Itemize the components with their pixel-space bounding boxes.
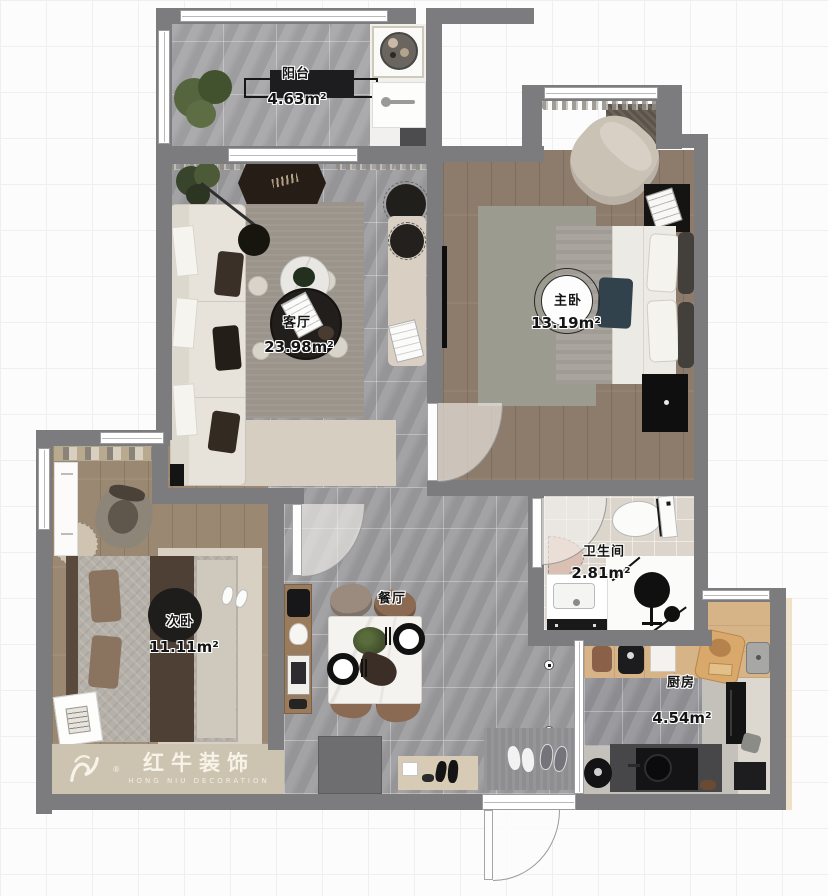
pillow xyxy=(88,635,122,689)
wall xyxy=(770,588,786,810)
bed-pillow xyxy=(646,233,680,293)
sideboard xyxy=(284,584,312,714)
pillow xyxy=(88,569,122,623)
bathroom-door xyxy=(532,498,542,568)
bed-bolster xyxy=(678,302,694,368)
kitchen-sliding-door xyxy=(574,640,584,794)
sofa-pillow-dark xyxy=(214,251,244,297)
room-label-living: 客厅 xyxy=(283,312,311,331)
floor-drain xyxy=(544,660,554,670)
wall xyxy=(427,146,443,403)
laundry-basin xyxy=(372,82,426,128)
slipper xyxy=(552,745,569,773)
floor-plan: 阳台 4.63m² 客厅 23.98m² 主卧 13.19m² 次卧 11.11… xyxy=(0,0,828,896)
bookshelf-row xyxy=(54,446,166,461)
outside-strip xyxy=(786,598,792,810)
bed-pillow xyxy=(646,299,679,362)
master-door xyxy=(427,403,438,481)
speaker xyxy=(170,464,184,486)
bed-bolster xyxy=(678,232,694,294)
teapot xyxy=(289,623,308,645)
wall xyxy=(427,480,708,496)
room-area-kitchen: 4.54m² xyxy=(652,709,711,727)
cutting-board-white xyxy=(650,642,676,672)
entry-door-mat xyxy=(484,728,574,790)
coffee-machine xyxy=(287,589,310,617)
room-label-master: 主卧 xyxy=(554,290,582,309)
wall xyxy=(426,8,534,24)
sofa-pillow-dark xyxy=(207,410,240,454)
room-area-second: 11.11m² xyxy=(149,638,219,656)
bench-cushion xyxy=(390,224,424,258)
watermark-subtitle: HONG NIU DECORATION xyxy=(128,777,269,785)
sofa-pillow-dark xyxy=(212,325,242,371)
slipper xyxy=(506,745,521,770)
accent-pillow xyxy=(597,277,634,329)
wall-tv xyxy=(442,246,447,348)
wall xyxy=(522,85,542,147)
wall xyxy=(694,480,708,646)
bull-logo-icon xyxy=(66,752,104,786)
balcony-plant xyxy=(174,70,244,142)
room-area-bathroom: 2.81m² xyxy=(571,564,630,582)
sofa-pillow-white xyxy=(172,297,198,349)
slipper xyxy=(521,748,535,773)
watermark-brand: 红牛装饰 xyxy=(143,753,255,774)
window xyxy=(180,10,388,22)
kettle xyxy=(584,758,612,788)
canister xyxy=(592,646,612,672)
entry-door-swing xyxy=(493,810,560,881)
window xyxy=(702,590,770,600)
window xyxy=(158,30,170,144)
window xyxy=(38,448,50,530)
room-label-balcony: 阳台 xyxy=(282,63,310,82)
wall xyxy=(694,134,708,498)
bathroom-vanity xyxy=(546,574,608,632)
wall xyxy=(528,630,712,646)
plate xyxy=(327,653,359,685)
registered-mark: ® xyxy=(112,765,120,774)
balcony-sliding-door xyxy=(228,148,358,162)
kitchen-sink xyxy=(746,642,770,674)
curtain xyxy=(542,100,658,110)
toilet xyxy=(610,495,682,544)
watermark: ® 红牛装饰 HONG NIU DECORATION xyxy=(52,744,284,794)
plate xyxy=(393,623,425,655)
wall xyxy=(268,502,284,750)
floor-lamp xyxy=(238,224,270,256)
cooktop xyxy=(636,748,698,790)
wall xyxy=(576,794,786,810)
room-label-bathroom: 卫生间 xyxy=(583,541,625,560)
kitchen-unit-right xyxy=(734,762,766,790)
nightstand xyxy=(644,184,690,232)
master-dresser xyxy=(642,374,688,432)
room-label-kitchen: 厨房 xyxy=(667,672,695,691)
wall xyxy=(36,794,484,810)
room-area-living: 23.98m² xyxy=(264,338,334,356)
shower-knob xyxy=(664,606,680,622)
papers xyxy=(645,188,682,229)
room-label-dining: 餐厅 xyxy=(378,588,406,607)
dining-side-rug xyxy=(318,736,382,794)
dish xyxy=(700,780,716,790)
sofa-pillow-white xyxy=(172,383,198,436)
second-bedroom-door xyxy=(292,504,302,576)
window xyxy=(100,432,164,444)
washing-machine xyxy=(372,26,424,78)
dining-table xyxy=(328,616,422,704)
window xyxy=(544,87,658,99)
daybed-bench xyxy=(388,216,426,366)
living-south-mat xyxy=(240,420,396,486)
rice-cooker xyxy=(618,644,644,674)
book xyxy=(388,319,424,363)
pouf xyxy=(248,276,268,296)
shower-head xyxy=(634,572,670,608)
wall xyxy=(156,146,172,440)
room-area-master: 13.19m² xyxy=(531,314,601,332)
framed-print xyxy=(287,655,310,695)
room-label-second: 次卧 xyxy=(166,611,194,630)
wall xyxy=(426,8,442,150)
entry-door xyxy=(484,810,493,880)
laundry-cabinet xyxy=(400,128,426,146)
floor-mat-book xyxy=(53,691,104,747)
wall xyxy=(434,146,544,162)
living-plant-left xyxy=(176,162,226,210)
slipper xyxy=(539,743,555,770)
room-area-balcony: 4.63m² xyxy=(267,90,326,108)
desk xyxy=(54,462,78,556)
entry-threshold xyxy=(482,794,576,810)
entry-shoe-mat xyxy=(398,756,478,790)
